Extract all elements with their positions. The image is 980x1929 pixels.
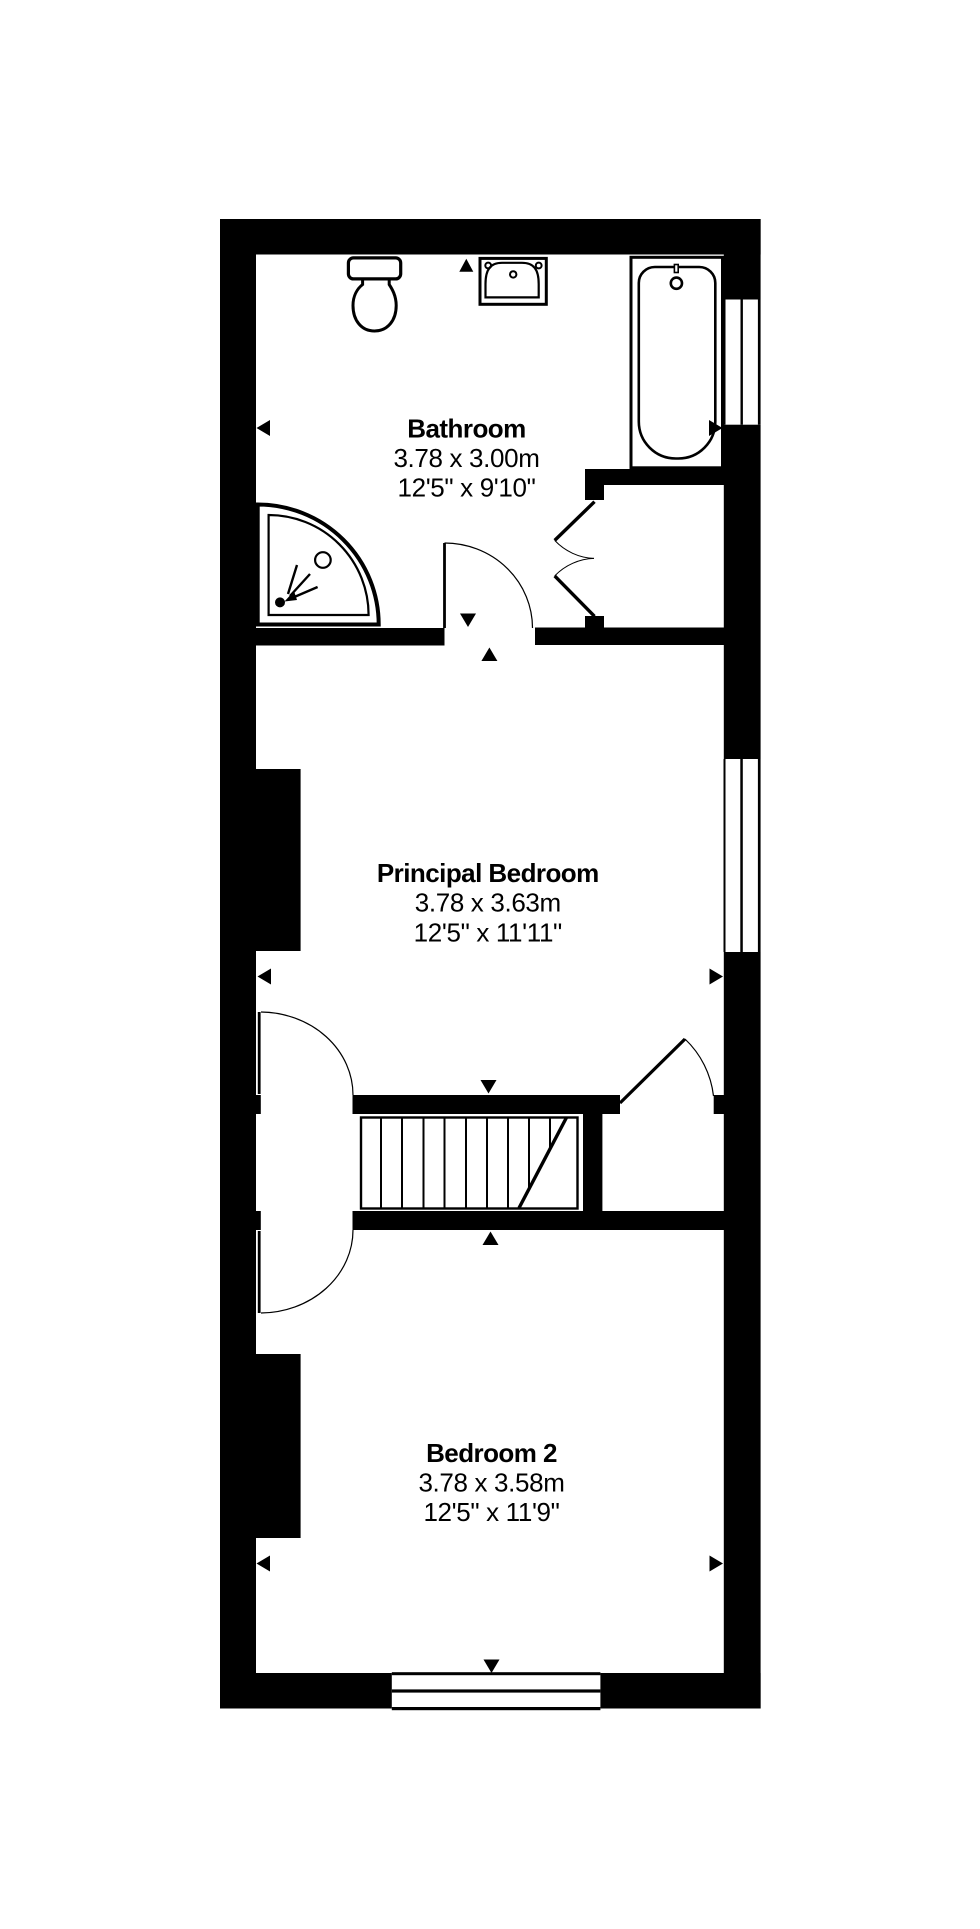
svg-text:Bedroom 2: Bedroom 2 [426, 1438, 557, 1468]
svg-text:3.78 x 3.58m: 3.78 x 3.58m [418, 1467, 564, 1497]
svg-text:12'5" x 11'11": 12'5" x 11'11" [414, 917, 562, 947]
svg-text:12'5" x 11'9": 12'5" x 11'9" [423, 1497, 559, 1527]
svg-text:3.78 x 3.63m: 3.78 x 3.63m [415, 888, 561, 918]
svg-text:12'5" x 9'10": 12'5" x 9'10" [397, 473, 535, 503]
svg-text:3.78 x 3.00m: 3.78 x 3.00m [393, 443, 539, 473]
svg-text:Principal Bedroom: Principal Bedroom [377, 858, 599, 888]
svg-text:Bathroom: Bathroom [407, 414, 525, 444]
